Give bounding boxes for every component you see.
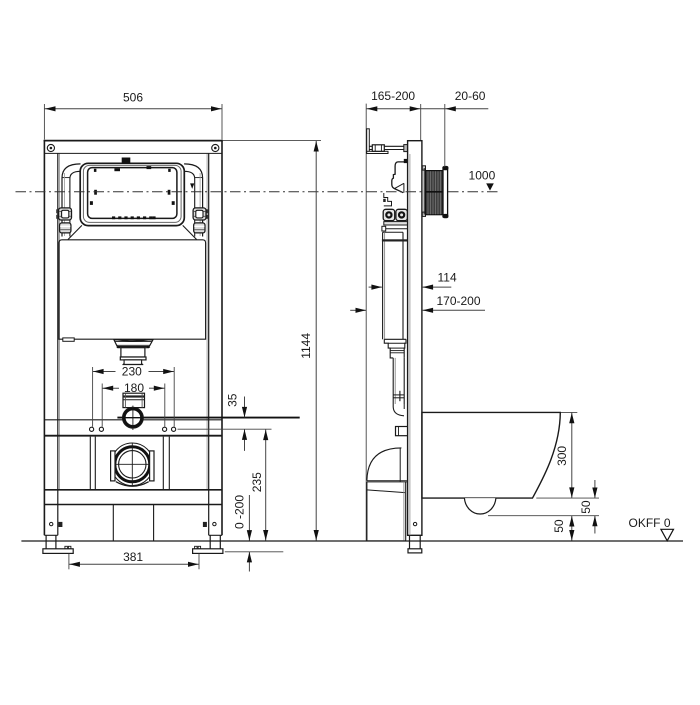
svg-text:35: 35: [226, 393, 240, 407]
svg-text:114: 114: [438, 270, 457, 284]
svg-text:165-200: 165-200: [371, 89, 415, 103]
svg-text:1144: 1144: [299, 333, 313, 359]
svg-text:230: 230: [122, 364, 142, 378]
svg-text:381: 381: [123, 550, 143, 564]
svg-text:170-200: 170-200: [436, 294, 480, 308]
svg-text:50: 50: [552, 519, 566, 533]
svg-text:506: 506: [123, 91, 143, 105]
svg-text:0 -200: 0 -200: [233, 495, 247, 529]
svg-text:50: 50: [579, 500, 593, 514]
svg-text:20-60: 20-60: [455, 89, 486, 103]
svg-text:OKFF 0: OKFF 0: [628, 516, 670, 530]
svg-text:235: 235: [250, 472, 264, 492]
svg-text:180: 180: [124, 381, 144, 395]
svg-text:1000: 1000: [469, 169, 496, 183]
svg-text:300: 300: [555, 446, 569, 466]
